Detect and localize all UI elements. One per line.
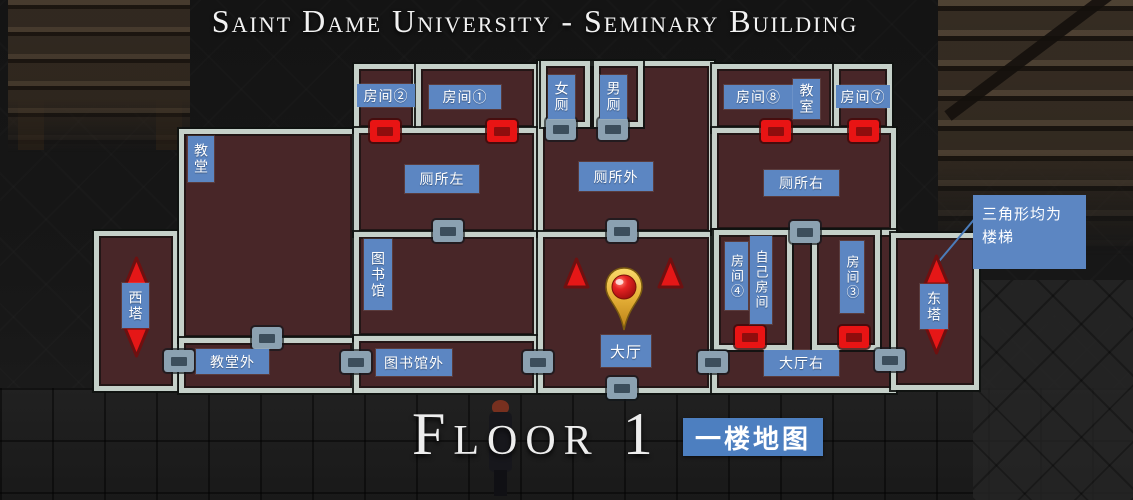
label-toilet-right: 厕所右 bbox=[764, 170, 839, 196]
door-marker-gray bbox=[252, 327, 282, 349]
stairs-up-icon bbox=[923, 254, 950, 286]
door-marker-gray bbox=[875, 349, 905, 371]
label-classroom: 教室 bbox=[793, 79, 820, 119]
door-marker-gray bbox=[607, 377, 637, 399]
door-panel bbox=[705, 358, 721, 367]
door-marker-red bbox=[761, 120, 791, 142]
door-panel bbox=[614, 384, 630, 393]
door-marker-gray bbox=[164, 350, 194, 372]
door-panel bbox=[171, 357, 187, 366]
label-east-tower: 东塔 bbox=[920, 284, 948, 329]
door-panel bbox=[553, 125, 569, 134]
page-title: Saint Dame University - Seminary Buildin… bbox=[120, 3, 950, 40]
door-panel bbox=[348, 358, 364, 367]
door-panel bbox=[882, 356, 898, 365]
door-marker-gray bbox=[698, 351, 728, 373]
label-chapel: 教堂 bbox=[188, 136, 214, 182]
label-chapel-outside: 教堂外 bbox=[196, 349, 269, 374]
door-panel bbox=[259, 334, 275, 343]
floor-title: Floor 1 bbox=[412, 404, 661, 464]
door-panel bbox=[494, 127, 510, 136]
door-marker-gray bbox=[433, 220, 463, 242]
door-panel bbox=[742, 333, 758, 342]
door-panel bbox=[856, 127, 872, 136]
label-toilet-outside: 厕所外 bbox=[579, 162, 653, 191]
door-marker-gray bbox=[523, 351, 553, 373]
label-hall: 大厅 bbox=[601, 335, 651, 367]
game-map-screen: Saint Dame University - Seminary Buildin… bbox=[0, 0, 1133, 500]
player-location-pin-icon bbox=[602, 266, 646, 334]
label-library: 图书馆 bbox=[364, 239, 392, 310]
label-men-toilet: 男厕 bbox=[600, 75, 627, 119]
door-panel bbox=[846, 333, 862, 342]
floor-badge: 一楼地图 bbox=[683, 418, 823, 456]
player-legs bbox=[494, 470, 507, 496]
door-marker-gray bbox=[598, 118, 628, 140]
label-west-tower: 西塔 bbox=[122, 283, 149, 328]
door-panel bbox=[614, 227, 630, 236]
door-marker-gray bbox=[546, 118, 576, 140]
door-marker-red bbox=[735, 326, 765, 348]
label-room-4: 房间④ bbox=[725, 242, 748, 310]
stairs-up-icon bbox=[657, 257, 684, 289]
legend-note: 三角形均为 楼梯 bbox=[973, 195, 1086, 269]
label-room-1: 房间① bbox=[429, 85, 501, 109]
door-marker-red bbox=[487, 120, 517, 142]
door-marker-gray bbox=[341, 351, 371, 373]
door-panel bbox=[797, 228, 813, 237]
label-toilet-left: 厕所左 bbox=[405, 165, 479, 193]
background-tile-patch bbox=[973, 280, 1133, 500]
door-panel bbox=[377, 127, 393, 136]
label-room-8: 房间⑧ bbox=[724, 85, 793, 109]
door-marker-gray bbox=[790, 221, 820, 243]
door-marker-red bbox=[849, 120, 879, 142]
door-marker-red bbox=[370, 120, 400, 142]
label-room-3: 房间③ bbox=[840, 241, 864, 313]
stairs-up-icon bbox=[563, 257, 590, 289]
label-women-toilet: 女厕 bbox=[548, 75, 575, 119]
door-panel bbox=[530, 358, 546, 367]
label-hall-right: 大厅右 bbox=[764, 350, 839, 376]
door-panel bbox=[768, 127, 784, 136]
label-own-room: 自己房间 bbox=[750, 236, 772, 324]
door-panel bbox=[440, 227, 456, 236]
door-panel bbox=[605, 125, 621, 134]
door-marker-gray bbox=[607, 220, 637, 242]
door-marker-red bbox=[839, 326, 869, 348]
label-room-2: 房间② bbox=[357, 84, 415, 107]
label-library-outside: 图书馆外 bbox=[376, 349, 452, 376]
label-room-7: 房间⑦ bbox=[836, 85, 890, 108]
stairs-down-icon bbox=[123, 326, 150, 358]
